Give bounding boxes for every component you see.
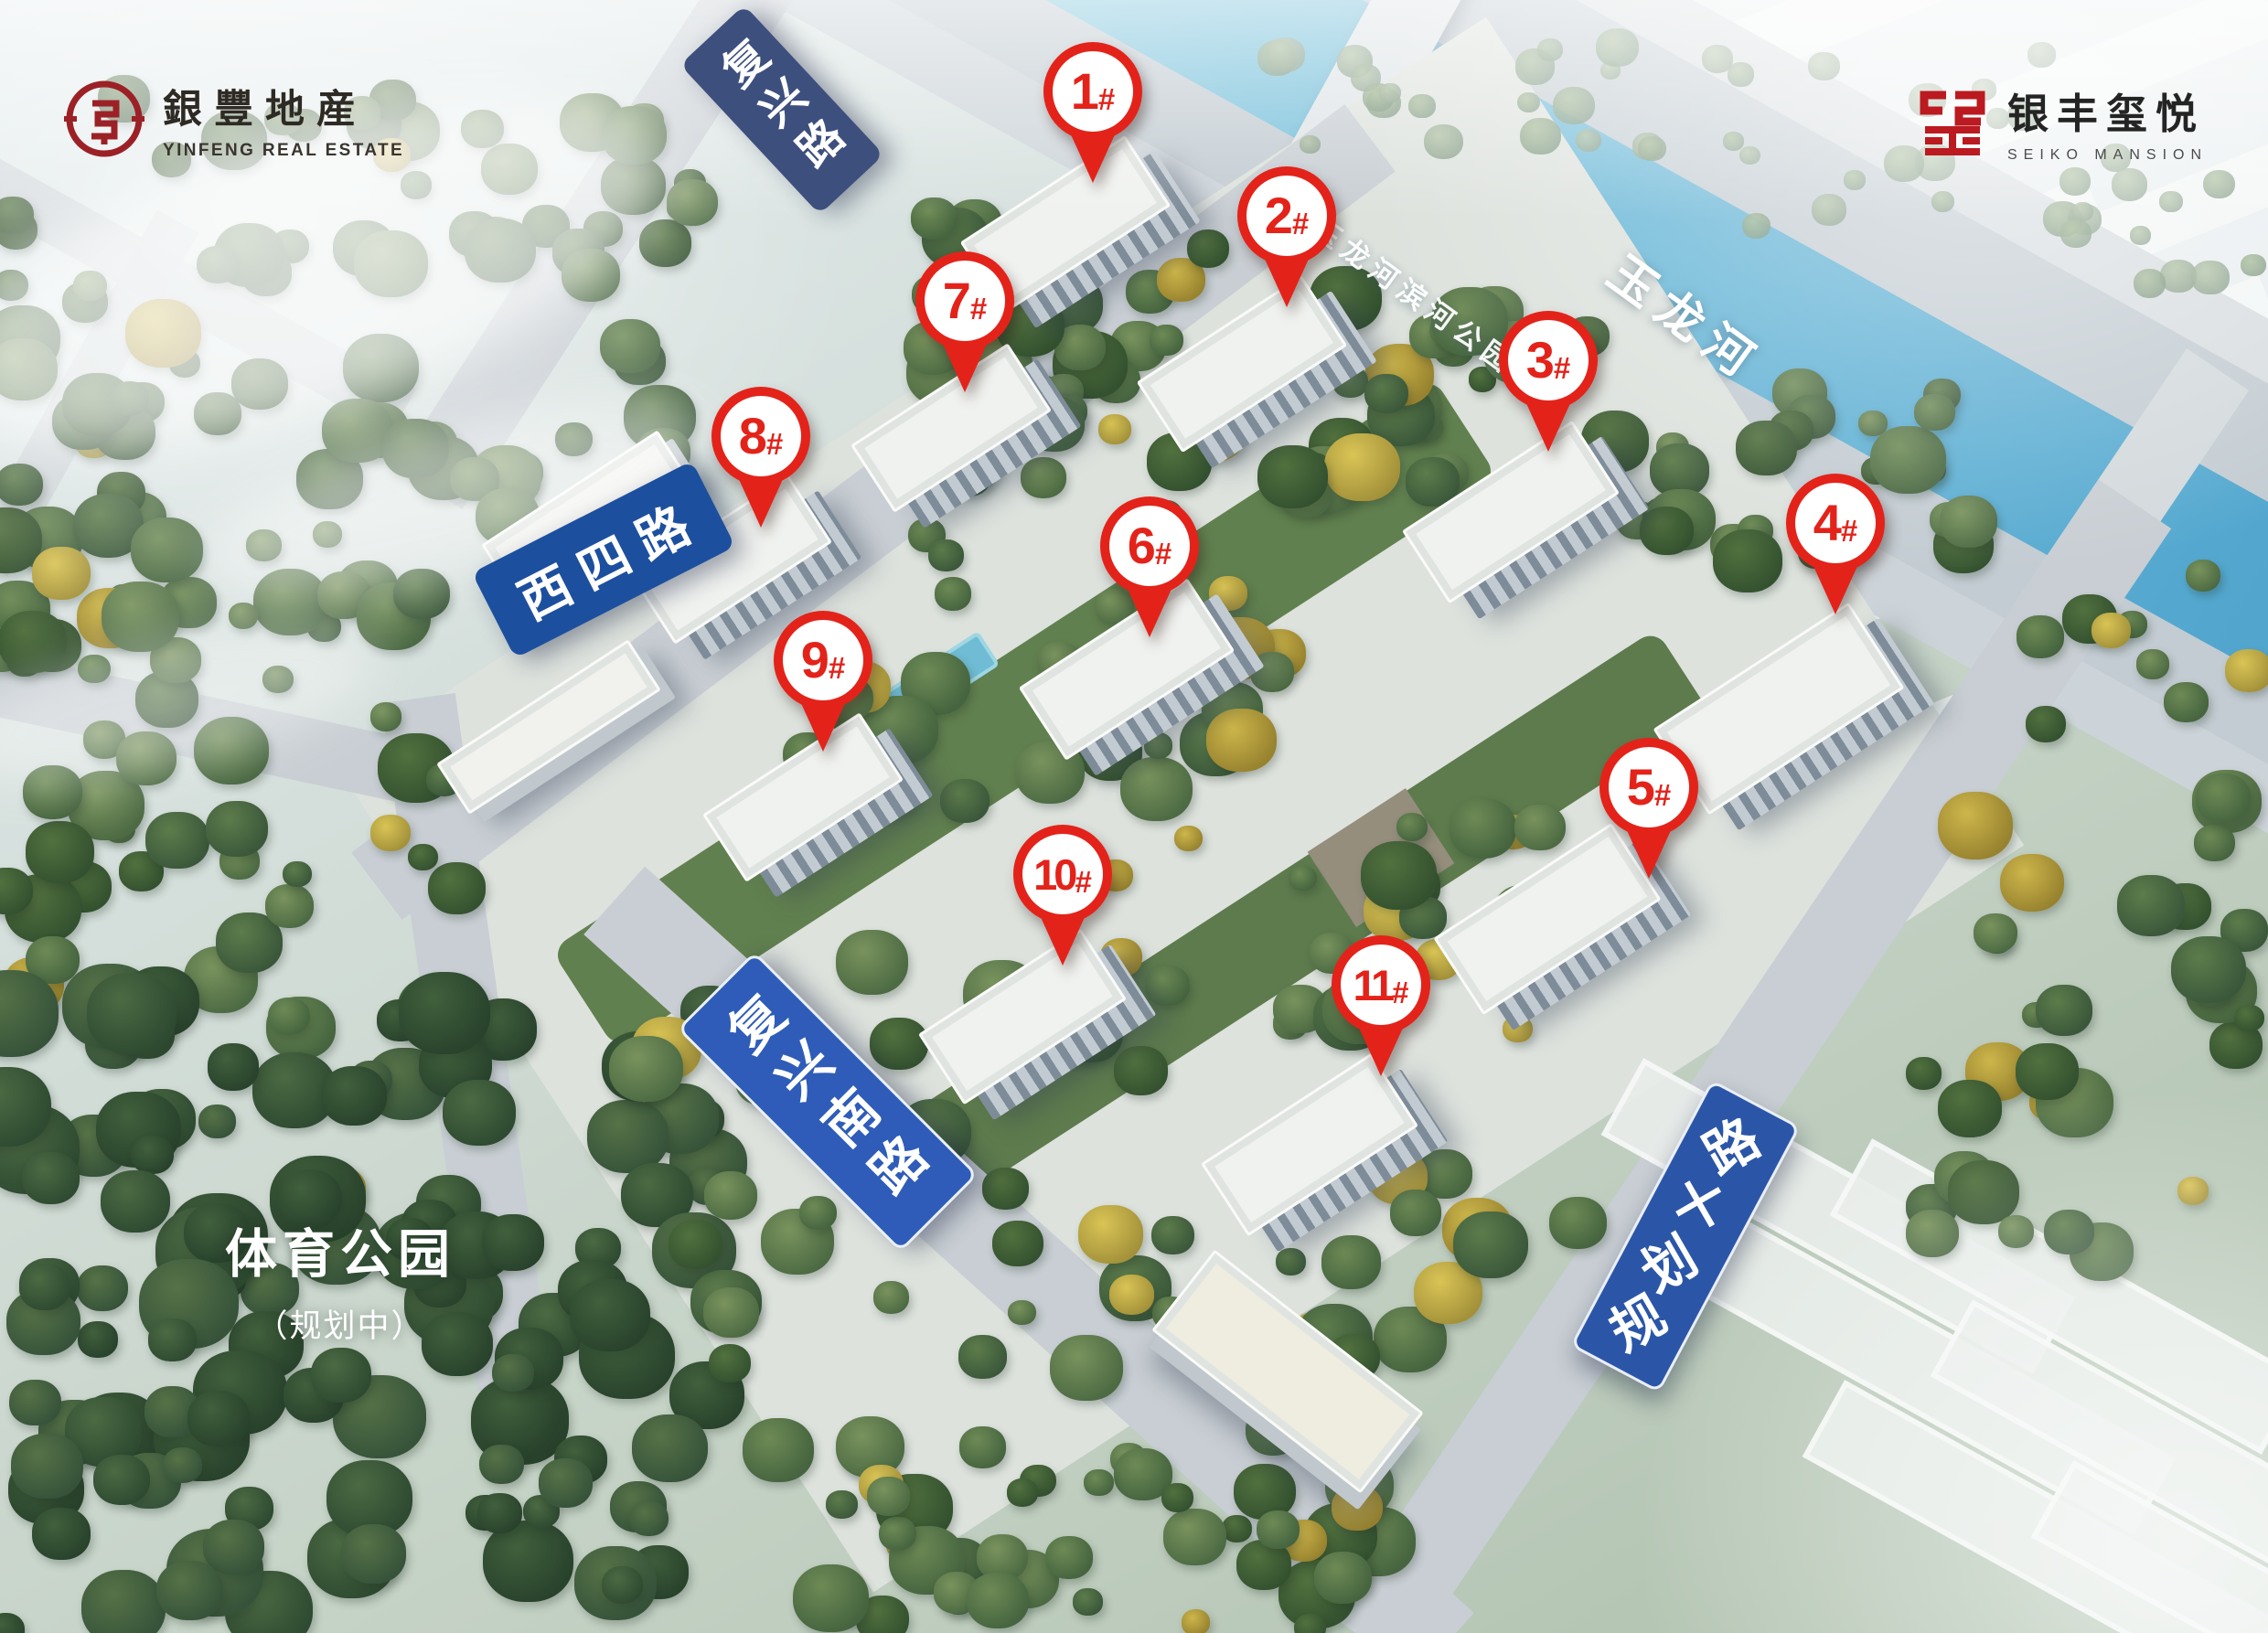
- tree: [2234, 1005, 2264, 1031]
- tree: [704, 1171, 757, 1219]
- tree: [1007, 1478, 1038, 1507]
- tree: [206, 801, 268, 857]
- tree: [602, 106, 667, 165]
- tree: [1276, 1248, 1306, 1275]
- tree: [32, 547, 91, 600]
- tree: [116, 731, 177, 785]
- tree: [1998, 1215, 2035, 1248]
- tree: [145, 812, 209, 869]
- tree: [479, 1445, 524, 1485]
- tree: [1324, 433, 1400, 501]
- project-logo: 银丰玺悦 SEIKO MANSION: [1914, 80, 2208, 164]
- marker-circle: 7#: [915, 251, 1014, 350]
- tree: [268, 998, 310, 1036]
- marker-number: 4: [1813, 497, 1840, 549]
- marker-number: 9: [801, 635, 828, 686]
- tree: [935, 577, 971, 610]
- tree: [1940, 496, 1997, 548]
- tree: [870, 1018, 927, 1070]
- tree: [743, 1418, 814, 1482]
- tree: [2016, 1043, 2079, 1100]
- sports-park-label: 体育公园 （规划中）: [225, 1212, 455, 1347]
- tree: [0, 197, 34, 234]
- tree: [2159, 191, 2182, 212]
- tree: [1078, 1205, 1143, 1264]
- tree: [0, 270, 28, 302]
- aerial-site-plan: 复兴路 西四路 复兴南路 路十划规 玉龙河 玉龙河滨河公园 体育公园 （规划中）…: [0, 0, 2268, 1633]
- marker-number: 11: [1353, 964, 1391, 1007]
- tree: [2091, 613, 2131, 648]
- marker-tail: [1358, 1026, 1404, 1076]
- tree: [600, 319, 660, 374]
- tree: [1739, 146, 1760, 165]
- tree: [2059, 167, 2091, 196]
- tree: [928, 539, 964, 571]
- tree: [639, 219, 692, 267]
- building-marker-10: 10#: [1013, 825, 1112, 966]
- tree: [408, 844, 438, 870]
- tree: [156, 1561, 223, 1620]
- tree: [1844, 170, 1866, 190]
- tree: [709, 1344, 752, 1382]
- tree: [879, 1517, 917, 1551]
- tree: [125, 299, 202, 368]
- tree: [2136, 649, 2169, 678]
- tree: [703, 1287, 759, 1338]
- tree: [481, 144, 538, 195]
- marker-circle: 11#: [1332, 935, 1430, 1034]
- marker-hash: #: [1654, 780, 1671, 810]
- tree: [2017, 615, 2064, 658]
- tree: [667, 179, 719, 226]
- tree: [992, 1221, 1043, 1266]
- tree: [2027, 42, 2056, 68]
- building-marker-4: 4#: [1786, 474, 1885, 614]
- tree: [1974, 913, 2017, 953]
- tree: [1728, 62, 1754, 86]
- tree: [1408, 94, 1435, 118]
- tree: [911, 197, 957, 240]
- tree: [1161, 1483, 1193, 1512]
- marker-tail: [738, 477, 784, 528]
- tree: [873, 1281, 909, 1314]
- tree: [602, 1566, 643, 1604]
- tree: [1390, 1190, 1441, 1236]
- tree: [2036, 985, 2092, 1036]
- tree: [2044, 1210, 2094, 1254]
- marker-hash: #: [829, 653, 845, 683]
- tree: [1109, 1275, 1155, 1316]
- tree: [465, 219, 536, 283]
- tree: [1379, 83, 1400, 102]
- tree: [2060, 219, 2091, 248]
- tree: [967, 1573, 1029, 1628]
- marker-number: 6: [1128, 520, 1154, 571]
- tree: [1702, 45, 1733, 73]
- tree: [2225, 649, 2268, 692]
- tree: [1514, 805, 1566, 851]
- tree: [2171, 936, 2246, 1003]
- marker-circle: 8#: [711, 387, 810, 486]
- marker-hash: #: [766, 429, 783, 459]
- tree: [1050, 1335, 1123, 1401]
- tree: [101, 1170, 170, 1233]
- tree: [1450, 798, 1517, 859]
- tree: [1914, 394, 1954, 431]
- tree: [32, 1508, 91, 1560]
- building-marker-11: 11#: [1332, 935, 1430, 1076]
- tree: [313, 521, 342, 548]
- tree: [1151, 1216, 1194, 1254]
- project-name-zh: 银丰玺悦: [2007, 80, 2208, 140]
- marker-hash: #: [1075, 867, 1091, 897]
- tree: [1289, 866, 1317, 891]
- tree: [163, 1447, 202, 1483]
- tree: [982, 1168, 1029, 1210]
- tree: [477, 1493, 522, 1533]
- tree: [283, 861, 312, 887]
- tree: [370, 815, 411, 851]
- tree: [1098, 414, 1131, 444]
- tree: [399, 972, 490, 1054]
- tree: [2134, 269, 2166, 298]
- tree: [2177, 1177, 2209, 1205]
- tree: [93, 1455, 150, 1506]
- tree: [87, 973, 177, 1053]
- tree: [19, 1264, 70, 1310]
- tree: [2186, 560, 2221, 592]
- tree: [1453, 1211, 1528, 1278]
- marker-number: 7: [943, 275, 969, 326]
- tree: [632, 1414, 708, 1483]
- tree: [629, 1501, 668, 1536]
- tree: [1314, 1552, 1372, 1604]
- marker-circle: 10#: [1013, 825, 1112, 923]
- tree: [2196, 774, 2251, 823]
- building-marker-3: 3#: [1499, 311, 1598, 452]
- tree: [73, 271, 107, 301]
- tree: [1266, 37, 1304, 72]
- tree: [1182, 1609, 1210, 1633]
- tree: [2191, 261, 2229, 294]
- tree: [1736, 421, 1797, 475]
- tree: [131, 1136, 174, 1174]
- tree: [2072, 202, 2093, 220]
- tree: [1537, 38, 1563, 61]
- tree: [1300, 135, 1320, 154]
- tree: [370, 702, 402, 731]
- marker-hash: #: [1554, 353, 1570, 383]
- tree: [2203, 170, 2235, 199]
- tree: [958, 1335, 1007, 1379]
- tree: [1145, 966, 1190, 1006]
- marker-tail: [1040, 915, 1086, 966]
- marker-number: 5: [1627, 762, 1653, 813]
- marker-number: 2: [1265, 190, 1291, 241]
- tree: [1931, 191, 1954, 212]
- tree: [867, 1477, 910, 1515]
- building-marker-5: 5#: [1599, 738, 1698, 879]
- tree: [1549, 1197, 1608, 1249]
- building-marker-8: 8#: [711, 387, 810, 528]
- marker-tail: [1127, 587, 1172, 637]
- tree: [2112, 168, 2148, 201]
- tree: [940, 779, 990, 824]
- tree: [1520, 118, 1561, 155]
- tree: [570, 1279, 650, 1351]
- tree: [1640, 507, 1694, 555]
- marker-circle: 4#: [1786, 474, 1885, 572]
- tree: [26, 821, 94, 883]
- tree: [1812, 194, 1846, 225]
- marker-hash: #: [1155, 539, 1171, 569]
- marker-circle: 3#: [1499, 311, 1598, 410]
- building-marker-7: 7#: [915, 251, 1014, 392]
- tree: [1938, 1080, 2002, 1137]
- marker-hash: #: [1392, 977, 1408, 1008]
- tree: [0, 611, 67, 673]
- tree: [9, 1380, 60, 1426]
- tree: [311, 1348, 371, 1403]
- marker-hash: #: [970, 294, 987, 324]
- tree: [555, 422, 593, 456]
- tree: [0, 464, 43, 506]
- tree: [1021, 457, 1066, 498]
- developer-logo: 銀豐地産 YINFENG REAL ESTATE: [62, 77, 404, 161]
- tree: [562, 249, 620, 302]
- tree: [2194, 825, 2235, 861]
- tree: [1576, 129, 1602, 153]
- tree: [198, 1105, 236, 1138]
- tree: [2164, 682, 2209, 722]
- project-mark-icon: [1914, 84, 1991, 161]
- marker-number: 10: [1033, 853, 1074, 896]
- tree: [1938, 792, 2013, 859]
- tree: [194, 392, 241, 435]
- tree: [229, 603, 258, 629]
- road-banner-fuxing-text: 复兴路: [709, 33, 857, 187]
- tree: [393, 569, 450, 620]
- tree: [102, 582, 179, 651]
- tree: [148, 1318, 196, 1361]
- building-marker-2: 2#: [1237, 166, 1336, 307]
- tree: [81, 1570, 166, 1633]
- marker-hash: #: [1292, 208, 1309, 239]
- tree: [492, 1354, 534, 1392]
- tree: [0, 1613, 25, 1633]
- tree: [354, 230, 428, 297]
- tree: [1294, 1614, 1326, 1633]
- tree: [197, 246, 239, 283]
- tree: [78, 1321, 118, 1358]
- tree: [1396, 813, 1428, 841]
- tree: [187, 1391, 250, 1446]
- tree: [1206, 709, 1277, 772]
- tree: [11, 1434, 83, 1499]
- tree: [601, 156, 666, 215]
- tree: [443, 1080, 516, 1146]
- tree: [826, 1490, 857, 1519]
- developer-name-en: YINFENG REAL ESTATE: [163, 141, 404, 161]
- tree: [1257, 1510, 1300, 1549]
- marker-hash: #: [1098, 84, 1115, 114]
- tree: [1045, 1536, 1093, 1579]
- tree: [799, 1196, 837, 1230]
- tree: [1084, 1469, 1113, 1496]
- building-marker-1: 1#: [1043, 42, 1142, 183]
- tree: [231, 358, 288, 410]
- marker-tail: [942, 342, 988, 392]
- tree: [111, 381, 149, 416]
- tree: [23, 765, 82, 819]
- tree: [1742, 213, 1771, 239]
- tree: [1321, 1235, 1381, 1289]
- tree: [669, 1220, 723, 1269]
- tree: [1257, 445, 1328, 508]
- tree: [959, 1426, 1006, 1468]
- tree: [78, 655, 110, 684]
- tree: [1906, 1057, 1942, 1089]
- marker-tail: [1626, 828, 1672, 879]
- tree: [461, 110, 504, 148]
- tree: [1120, 757, 1193, 822]
- tree: [131, 518, 203, 582]
- tree: [1174, 826, 1203, 851]
- tree: [2026, 706, 2067, 742]
- tree: [246, 529, 282, 561]
- tree: [1906, 1210, 1959, 1257]
- marker-number: 3: [1526, 335, 1553, 386]
- tree: [22, 1152, 80, 1204]
- tree: [2117, 875, 2185, 936]
- tree: [428, 862, 486, 914]
- building-marker-6: 6#: [1100, 496, 1199, 637]
- tree: [341, 1524, 407, 1583]
- tree: [321, 1066, 387, 1126]
- tree: [539, 1458, 594, 1508]
- marker-tail: [1525, 401, 1571, 452]
- marker-circle: 2#: [1237, 166, 1336, 265]
- tree: [2130, 226, 2151, 245]
- marker-number: 8: [739, 411, 765, 462]
- tree: [253, 569, 327, 635]
- tree: [343, 334, 420, 402]
- tree: [1364, 374, 1408, 413]
- tree: [1948, 1160, 2019, 1224]
- tree: [262, 666, 294, 694]
- marker-circle: 9#: [774, 611, 872, 710]
- marker-tail: [1264, 257, 1310, 307]
- tree: [194, 717, 270, 784]
- marker-circle: 1#: [1043, 42, 1142, 141]
- tree: [1150, 325, 1183, 356]
- tree: [1361, 841, 1437, 909]
- tree: [1187, 229, 1230, 268]
- tree: [1163, 1509, 1226, 1565]
- tree: [1424, 124, 1463, 160]
- tree: [382, 419, 449, 478]
- tree: [401, 171, 432, 199]
- tree: [0, 338, 58, 400]
- tree: [1008, 1300, 1035, 1325]
- tree: [482, 1214, 544, 1270]
- sports-park-subtitle: （规划中）: [225, 1300, 455, 1347]
- developer-name-zh: 銀豐地産: [163, 78, 404, 134]
- tree: [2000, 854, 2064, 912]
- tree: [2241, 254, 2265, 277]
- marker-number: 1: [1071, 66, 1097, 117]
- tree: [1638, 136, 1665, 161]
- marker-circle: 6#: [1100, 496, 1199, 595]
- tree: [208, 1043, 260, 1090]
- tree: [1114, 1046, 1169, 1095]
- marker-tail: [800, 701, 846, 752]
- developer-seal-icon: [62, 77, 146, 161]
- marker-hash: #: [1841, 516, 1857, 546]
- tree: [1596, 28, 1639, 67]
- tree: [587, 1100, 669, 1173]
- marker-tail: [1070, 133, 1116, 183]
- marker-tail: [1813, 564, 1858, 614]
- tree: [265, 884, 314, 928]
- tree: [609, 1036, 682, 1102]
- sports-park-title: 体育公园: [225, 1212, 455, 1287]
- marker-circle: 5#: [1599, 738, 1698, 837]
- tree: [77, 1265, 128, 1312]
- building-marker-9: 9#: [774, 611, 872, 752]
- tree: [1808, 52, 1840, 80]
- tree: [793, 1564, 869, 1632]
- project-name-en: SEIKO MANSION: [2007, 147, 2208, 164]
- tree: [1713, 529, 1782, 592]
- tree: [836, 930, 908, 995]
- tree: [1553, 87, 1595, 124]
- tree: [1073, 1588, 1103, 1615]
